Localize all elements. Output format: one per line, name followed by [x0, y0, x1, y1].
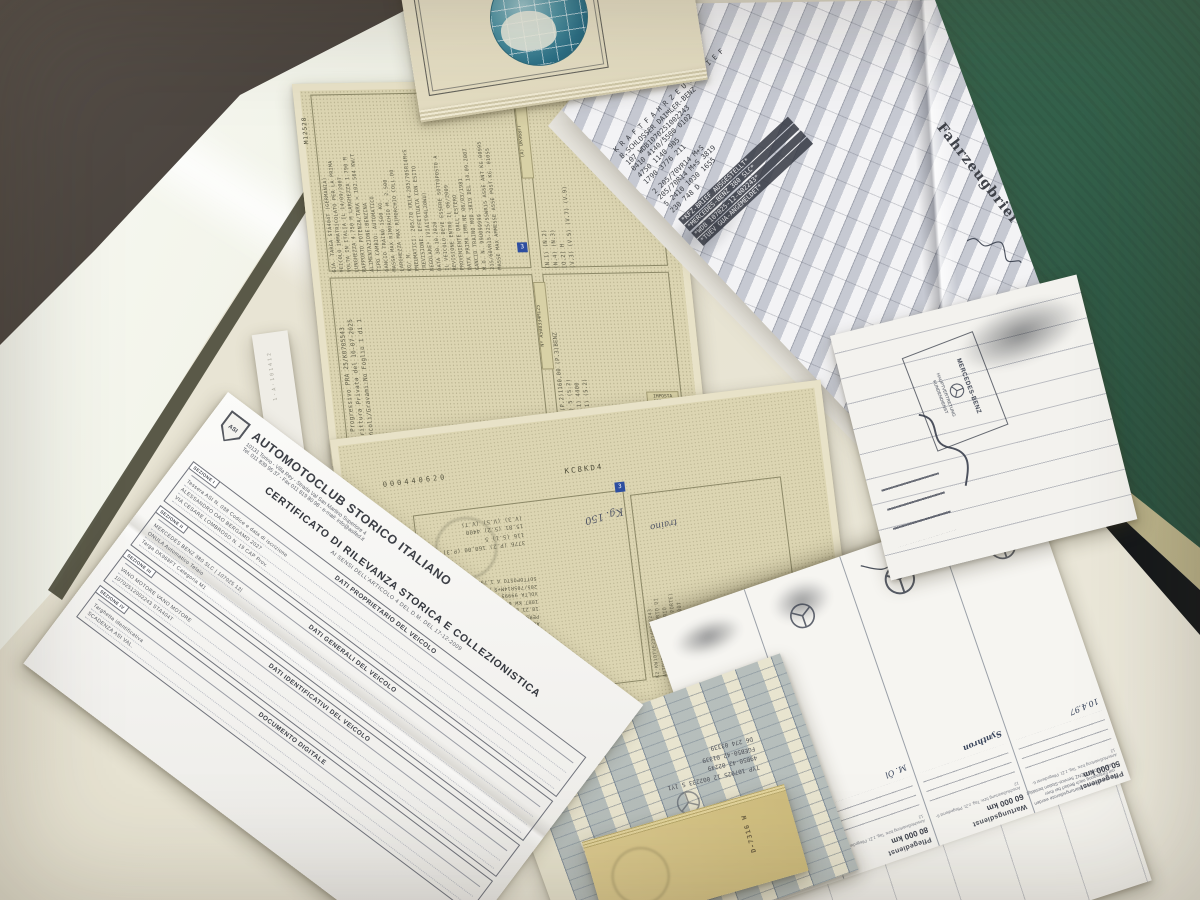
carta2-serial: 000440620	[382, 473, 447, 489]
stamp-page-field-dashes	[881, 472, 956, 547]
yellow-booklet-code: D-7316 W	[739, 814, 758, 854]
asi-shield-text: ASI	[227, 424, 239, 435]
asi-shield-icon: ASI	[214, 410, 251, 448]
carta2-field-marker-3: 3	[614, 481, 625, 492]
svc-ink-blob-4	[670, 609, 747, 664]
photo-canvas: 1·A·101412 M12528 GIA. TARGA STA404T (GE…	[0, 0, 1200, 900]
yellow-booklet-stamp-arc	[605, 840, 677, 900]
carta2-code: KC8KD4	[564, 462, 604, 476]
